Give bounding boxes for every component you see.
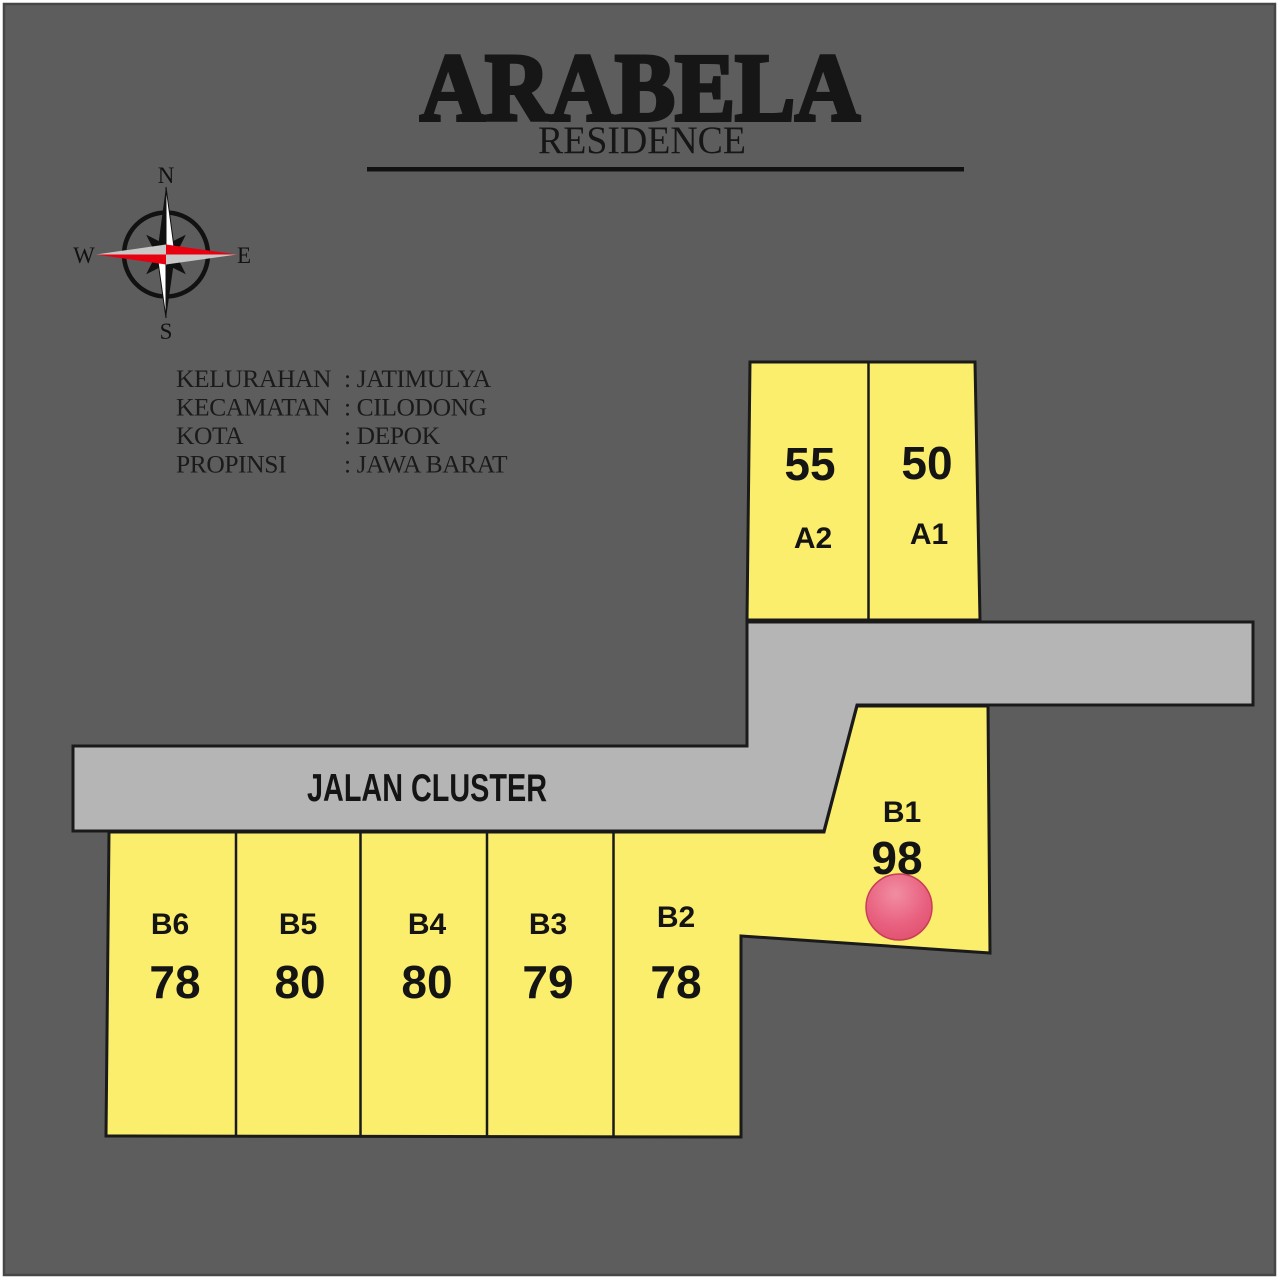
svg-text:A2: A2 xyxy=(794,522,832,555)
svg-text:80: 80 xyxy=(401,956,452,1008)
svg-text:KOTA: KOTA xyxy=(176,421,244,450)
svg-text:B3: B3 xyxy=(529,908,567,941)
svg-text:78: 78 xyxy=(149,956,200,1008)
svg-text:B2: B2 xyxy=(657,901,695,934)
svg-text:: CILODONG: : CILODONG xyxy=(344,393,487,422)
svg-text:: JATIMULYA: : JATIMULYA xyxy=(344,364,492,393)
svg-text:S: S xyxy=(160,319,173,344)
svg-text:78: 78 xyxy=(650,956,701,1008)
svg-text:N: N xyxy=(158,163,175,188)
svg-text:55: 55 xyxy=(784,438,835,490)
svg-text:B4: B4 xyxy=(408,908,447,941)
svg-text:B6: B6 xyxy=(151,908,189,941)
svg-text:79: 79 xyxy=(522,956,573,1008)
svg-text:B5: B5 xyxy=(279,908,317,941)
svg-text:50: 50 xyxy=(901,437,952,489)
svg-text:PROPINSI: PROPINSI xyxy=(176,450,286,479)
svg-text:KECAMATAN: KECAMATAN xyxy=(176,393,330,422)
svg-text:A1: A1 xyxy=(910,518,948,551)
svg-text:: DEPOK: : DEPOK xyxy=(344,421,441,450)
svg-text:JALAN CLUSTER: JALAN CLUSTER xyxy=(307,767,547,810)
svg-text:B1: B1 xyxy=(883,796,921,829)
svg-text:RESIDENCE: RESIDENCE xyxy=(538,119,746,162)
svg-text:W: W xyxy=(73,243,95,268)
svg-text:KELURAHAN: KELURAHAN xyxy=(176,364,331,393)
svg-text:80: 80 xyxy=(274,956,325,1008)
svg-text:E: E xyxy=(237,243,251,268)
svg-text:: JAWA BARAT: : JAWA BARAT xyxy=(344,450,508,479)
